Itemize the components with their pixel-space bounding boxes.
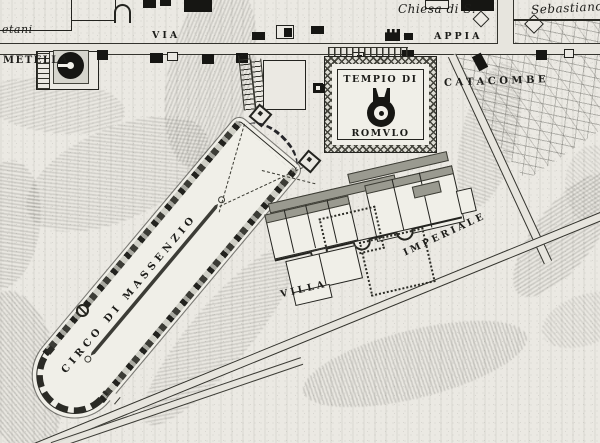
carceres-tower-south [298, 150, 322, 174]
temple-of-romulus-enclosure: TEMPIO DI ROMVLO [324, 56, 437, 153]
church-access-road [497, 0, 514, 44]
roadside-tomb [284, 28, 292, 37]
temple-label-line1: TEMPIO DI [325, 75, 436, 85]
roadside-building [143, 0, 156, 8]
metella-label: METELLA [3, 56, 69, 66]
castellated-tomb [385, 29, 400, 41]
roadside-tomb [167, 52, 178, 61]
caetani-label: etani [2, 24, 33, 35]
roadside-tomb [252, 32, 265, 40]
boundary-wall [513, 19, 600, 21]
roadside-tomb [150, 53, 163, 63]
roadside-building [184, 0, 212, 12]
temple-label-line2: ROMVLO [325, 129, 436, 139]
caetani-castle-wing [72, 0, 116, 21]
quadrangle-enclosure [263, 60, 306, 110]
temple-central-pier [379, 111, 384, 116]
appia-label: APPIA [434, 32, 482, 42]
church-apse-outline [114, 4, 131, 23]
gate-tower-door [316, 86, 320, 90]
via-label: VIA [152, 31, 180, 41]
roadside-tomb [311, 26, 324, 34]
roadside-tomb [97, 50, 108, 60]
circus-wall-tower [76, 304, 89, 317]
engraved-map-circus-of-maxentius: TEMPIO DI ROMVLO CIRCO DI MASSENZIO [0, 0, 600, 443]
roadside-tomb [404, 33, 413, 40]
roadside-tomb [564, 49, 574, 58]
roadside-tomb [536, 50, 547, 60]
roadside-tomb [202, 54, 214, 64]
sebastiano-label: Sebastiano [531, 0, 600, 16]
chiesa-label: Chiesa di S. [398, 3, 476, 15]
roadside-building [160, 0, 171, 6]
